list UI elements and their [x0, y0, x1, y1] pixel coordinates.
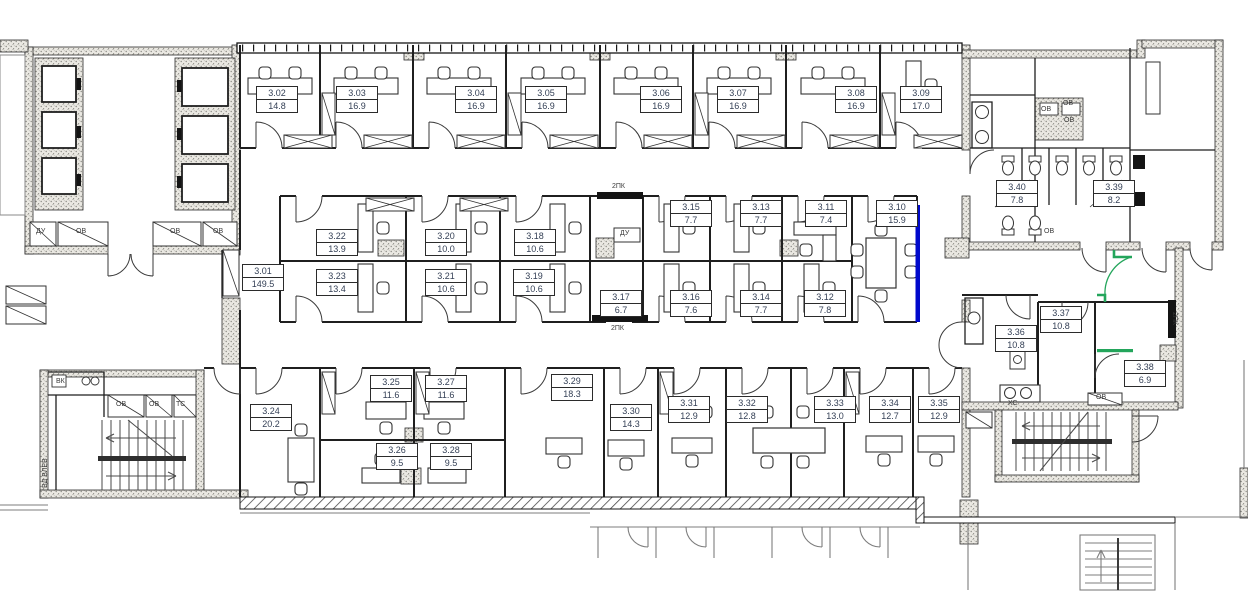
- shaft-label: ОВ: [213, 228, 223, 236]
- shaft-label: ОВ: [149, 401, 159, 409]
- room-label-3.07: 3.0716.9: [717, 86, 759, 113]
- room-area: 14.3: [611, 417, 651, 430]
- room-number: 3.14: [741, 291, 781, 303]
- room-number: 3.22: [317, 230, 357, 242]
- room-number: 3.27: [426, 376, 466, 388]
- room-number: 3.38: [1125, 361, 1165, 373]
- room-number: 3.04: [456, 87, 496, 99]
- room-area: 7.8: [805, 303, 845, 316]
- room-area: 16.9: [718, 99, 758, 112]
- room-area: 7.4: [806, 213, 846, 226]
- shaft-label: 2ПК: [1170, 312, 1178, 325]
- room-number: 3.08: [836, 87, 876, 99]
- room-number: 3.26: [377, 444, 417, 456]
- room-label-3.25: 3.2511.6: [370, 375, 412, 402]
- shaft-label: ОВ: [1041, 106, 1051, 114]
- room-label-3.09: 3.0917.0: [900, 86, 942, 113]
- room-number: 3.23: [317, 270, 357, 282]
- room-label-3.08: 3.0816.9: [835, 86, 877, 113]
- room-area: 8.2: [1094, 193, 1134, 206]
- room-label-3.21: 3.2110.6: [425, 269, 467, 296]
- room-area: 6.9: [1125, 373, 1165, 386]
- room-label-3.11: 3.117.4: [805, 200, 847, 227]
- shaft-label: ОВ: [116, 401, 126, 409]
- room-label-3.23: 3.2313.4: [316, 269, 358, 296]
- room-area: 9.5: [377, 456, 417, 469]
- room-number: 3.06: [641, 87, 681, 99]
- room-number: 3.20: [426, 230, 466, 242]
- room-label-3.26: 3.269.5: [376, 443, 418, 470]
- room-number: 3.18: [515, 230, 555, 242]
- room-label-3.29: 3.2918.3: [551, 374, 593, 401]
- shaft-label: ХС: [1008, 400, 1018, 408]
- room-number: 3.11: [806, 201, 846, 213]
- shaft-label: ОВ: [1096, 394, 1106, 402]
- room-area: 7.8: [997, 193, 1037, 206]
- room-area: 16.9: [641, 99, 681, 112]
- room-label-3.04: 3.0416.9: [455, 86, 497, 113]
- room-number: 3.16: [671, 291, 711, 303]
- room-label-3.10: 3.1015.9: [876, 200, 918, 227]
- room-area: 13.9: [317, 242, 357, 255]
- room-number: 3.25: [371, 376, 411, 388]
- room-label-3.36: 3.3610.8: [995, 325, 1037, 352]
- room-number: 3.33: [815, 397, 855, 409]
- room-area: 15.9: [877, 213, 917, 226]
- room-area: 12.9: [919, 409, 959, 422]
- room-number: 3.28: [431, 444, 471, 456]
- shaft-label: ОВ: [1063, 100, 1073, 108]
- room-number: 3.36: [996, 326, 1036, 338]
- room-label-3.37: 3.3710.8: [1040, 306, 1082, 333]
- room-area: 10.8: [1041, 319, 1081, 332]
- room-label-3.35: 3.3512.9: [918, 396, 960, 423]
- room-area: 16.9: [526, 99, 566, 112]
- room-label-3.22: 3.2213.9: [316, 229, 358, 256]
- room-area: 6.7: [601, 303, 641, 316]
- room-label-3.05: 3.0516.9: [525, 86, 567, 113]
- room-label-3.13: 3.137.7: [740, 200, 782, 227]
- room-number: 3.17: [601, 291, 641, 303]
- room-label-3.03: 3.0316.9: [336, 86, 378, 113]
- room-area: 9.5: [431, 456, 471, 469]
- shaft-label: 2ПК: [611, 325, 624, 333]
- room-area: 11.6: [426, 388, 466, 401]
- room-number: 3.24: [251, 405, 291, 417]
- room-area: 16.9: [836, 99, 876, 112]
- room-label-3.30: 3.3014.3: [610, 404, 652, 431]
- room-area: 16.9: [337, 99, 377, 112]
- room-area: 13.0: [815, 409, 855, 422]
- room-label-3.28: 3.289.5: [430, 443, 472, 470]
- room-number: 3.37: [1041, 307, 1081, 319]
- room-area: 149.5: [243, 277, 283, 290]
- room-area: 20.2: [251, 417, 291, 430]
- shaft-label: 2ПК: [612, 183, 625, 191]
- room-label-3.19: 3.1910.6: [513, 269, 555, 296]
- room-number: 3.21: [426, 270, 466, 282]
- room-area: 7.6: [671, 303, 711, 316]
- shaft-label: ОВ: [76, 228, 86, 236]
- room-area: 10.0: [426, 242, 466, 255]
- shaft-label: ВК: [56, 378, 65, 386]
- room-number: 3.31: [669, 397, 709, 409]
- room-label-3.15: 3.157.7: [670, 200, 712, 227]
- room-area: 10.6: [514, 282, 554, 295]
- labels-layer: 3.01149.53.0214.83.0316.93.0416.93.0516.…: [0, 0, 1248, 591]
- room-number: 3.35: [919, 397, 959, 409]
- room-number: 3.12: [805, 291, 845, 303]
- room-number: 3.10: [877, 201, 917, 213]
- room-label-3.17: 3.176.7: [600, 290, 642, 317]
- room-number: 3.34: [870, 397, 910, 409]
- room-label-3.02: 3.0214.8: [256, 86, 298, 113]
- room-label-3.01: 3.01149.5: [242, 264, 284, 291]
- room-number: 3.32: [727, 397, 767, 409]
- room-label-3.18: 3.1810.6: [514, 229, 556, 256]
- room-area: 11.6: [371, 388, 411, 401]
- room-number: 3.02: [257, 87, 297, 99]
- room-number: 3.09: [901, 87, 941, 99]
- room-area: 13.4: [317, 282, 357, 295]
- room-number: 3.39: [1094, 181, 1134, 193]
- room-area: 14.8: [257, 99, 297, 112]
- room-label-3.20: 3.2010.0: [425, 229, 467, 256]
- shaft-label: ОВ: [1064, 117, 1074, 125]
- room-area: 7.7: [741, 303, 781, 316]
- room-area: 10.6: [426, 282, 466, 295]
- room-label-3.16: 3.167.6: [670, 290, 712, 317]
- room-label-3.40: 3.407.8: [996, 180, 1038, 207]
- room-area: 18.3: [552, 387, 592, 400]
- room-label-3.39: 3.398.2: [1093, 180, 1135, 207]
- room-number: 3.01: [243, 265, 283, 277]
- shaft-label: ОВ: [1044, 228, 1054, 236]
- room-area: 10.8: [996, 338, 1036, 351]
- room-number: 3.05: [526, 87, 566, 99]
- room-area: 16.9: [456, 99, 496, 112]
- room-label-3.38: 3.386.9: [1124, 360, 1166, 387]
- room-number: 3.30: [611, 405, 651, 417]
- room-number: 3.15: [671, 201, 711, 213]
- room-number: 3.13: [741, 201, 781, 213]
- room-label-3.32: 3.3212.8: [726, 396, 768, 423]
- shaft-label: ДУ: [620, 230, 629, 238]
- shaft-label: ОВ: [170, 228, 180, 236]
- room-label-3.24: 3.2420.2: [250, 404, 292, 431]
- shaft-label: ВД ВЛЕВ: [42, 458, 50, 488]
- room-number: 3.40: [997, 181, 1037, 193]
- room-number: 3.19: [514, 270, 554, 282]
- room-label-3.33: 3.3313.0: [814, 396, 856, 423]
- room-number: 3.03: [337, 87, 377, 99]
- room-area: 7.7: [741, 213, 781, 226]
- room-area: 17.0: [901, 99, 941, 112]
- room-number: 3.29: [552, 375, 592, 387]
- floor-plan: 3.01149.53.0214.83.0316.93.0416.93.0516.…: [0, 0, 1248, 591]
- room-label-3.27: 3.2711.6: [425, 375, 467, 402]
- room-label-3.14: 3.147.7: [740, 290, 782, 317]
- room-area: 12.7: [870, 409, 910, 422]
- room-area: 12.9: [669, 409, 709, 422]
- room-label-3.06: 3.0616.9: [640, 86, 682, 113]
- room-label-3.31: 3.3112.9: [668, 396, 710, 423]
- shaft-label: ТС: [176, 401, 185, 409]
- room-area: 12.8: [727, 409, 767, 422]
- room-number: 3.07: [718, 87, 758, 99]
- room-label-3.34: 3.3412.7: [869, 396, 911, 423]
- room-area: 10.6: [515, 242, 555, 255]
- room-area: 7.7: [671, 213, 711, 226]
- shaft-label: ДУ: [36, 228, 45, 236]
- room-label-3.12: 3.127.8: [804, 290, 846, 317]
